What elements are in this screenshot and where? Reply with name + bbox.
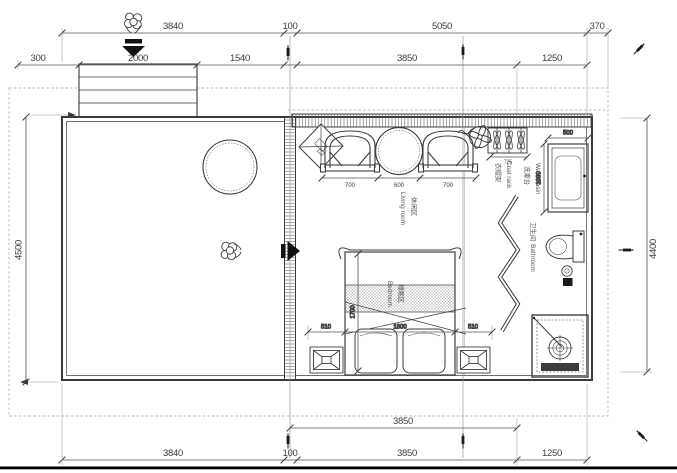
dim-top-3840: 3840 (163, 21, 183, 32)
table-dim: 600 (394, 183, 405, 189)
dim-bottom-100: 100 (283, 448, 298, 459)
bottom-dimensions: 3850 3840 100 3850 1250 (59, 384, 591, 465)
dim-top-370: 370 (590, 21, 605, 32)
dim-top-3850: 3850 (397, 53, 417, 64)
bedroom-label-zh: 睡眠区 (397, 284, 405, 304)
living-room-label-zh: 休闲区 (410, 197, 419, 217)
living-room-label-en: Living room (399, 192, 406, 225)
bed-length-dim: 1700 (351, 305, 357, 319)
bed-width-dim: 1800 (393, 325, 407, 331)
dim-bottom-3850: 3850 (397, 448, 417, 459)
bedroom-label-en: Bedroom (386, 281, 393, 307)
entry-steps (79, 64, 197, 117)
dim-bottom-1250: 1250 (542, 448, 562, 459)
washbasin-label-zh: 洗漱台 (523, 166, 532, 185)
person-pushing-icon (124, 13, 141, 33)
washbasin-label-en: Washbasin (534, 163, 541, 195)
dim-bottom-3850-inner: 3850 (393, 416, 413, 427)
bathroom-label: 卫生间Bathroom (529, 222, 538, 272)
washbasin-width-dim: 500 (563, 131, 574, 137)
dim-left-4500: 4500 (14, 240, 25, 260)
dim-top-2000: 2000 (128, 53, 148, 64)
pen-marker-icon (637, 431, 648, 442)
dim-top-100: 100 (283, 21, 298, 32)
dim-top-300: 300 (31, 53, 46, 64)
pen-marker-icon (634, 44, 645, 55)
dim-bottom-3840: 3840 (163, 448, 183, 459)
coat-rack-label-zh: 衣帽架 (494, 163, 503, 183)
bed-margin-right-dim: 510 (468, 325, 479, 331)
nightstand-left (310, 347, 343, 373)
dim-top-1250: 1250 (542, 53, 562, 64)
top-wall-hatched (292, 114, 592, 127)
floor-plan-page: 725 500 1000 (0, 0, 677, 473)
dim-right-4400: 4400 (648, 239, 659, 259)
shower-mat (541, 363, 579, 371)
dim-top-1540: 1540 (230, 53, 250, 64)
bed-margin-left-dim: 510 (321, 325, 332, 331)
coat-rack-label-en: Coat rack (505, 161, 512, 189)
page-bottom-border (0, 467, 677, 470)
chair-right-dim: 700 (443, 183, 454, 189)
chair-left-dim: 700 (345, 183, 356, 189)
floor-plan-canvas: 725 500 1000 (0, 0, 677, 473)
nightstand-right (457, 347, 490, 373)
dim-top-5050: 5050 (432, 21, 452, 32)
